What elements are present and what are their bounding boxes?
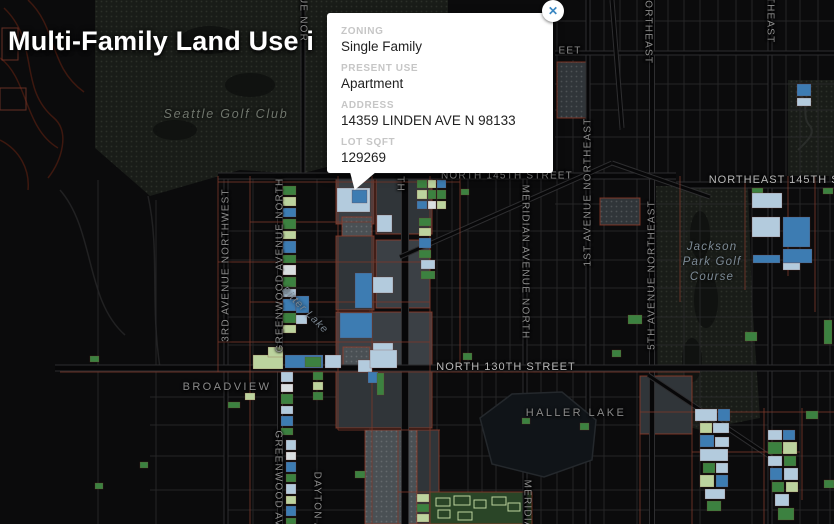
parcel[interactable]: [368, 372, 378, 383]
parcel[interactable]: [281, 394, 293, 404]
parcel[interactable]: [417, 180, 427, 188]
parcel[interactable]: [283, 289, 296, 297]
popup-field-value: Single Family: [341, 38, 539, 56]
parcel[interactable]: [325, 355, 341, 368]
parcel[interactable]: [268, 347, 283, 357]
parcel[interactable]: [340, 313, 372, 338]
parcel[interactable]: [783, 249, 812, 263]
parcel[interactable]: [419, 250, 431, 258]
parcel[interactable]: [421, 271, 435, 279]
popup-field: ZONINGSingle Family: [341, 26, 539, 56]
parcel[interactable]: [286, 496, 296, 504]
popup-field: ADDRESS14359 LINDEN AVE N 98133: [341, 100, 539, 130]
parcel[interactable]: [286, 440, 296, 450]
parcel[interactable]: [752, 188, 763, 193]
parcel[interactable]: [281, 428, 293, 435]
lake-layer: [480, 392, 596, 477]
popup-field-label: PRESENT USE: [341, 63, 539, 75]
parcel[interactable]: [772, 482, 784, 492]
parcel[interactable]: [797, 84, 811, 96]
parcel[interactable]: [753, 255, 780, 263]
parcel[interactable]: [705, 489, 725, 499]
parcel[interactable]: [296, 315, 307, 324]
parcel[interactable]: [281, 406, 293, 414]
parcel[interactable]: [745, 332, 757, 341]
parcel[interactable]: [428, 201, 436, 209]
parcel[interactable]: [437, 190, 446, 199]
parcel[interactable]: [305, 357, 321, 367]
parcel[interactable]: [700, 475, 714, 487]
parcel[interactable]: [417, 201, 427, 209]
popup-field-value: 129269: [341, 149, 539, 167]
parcel[interactable]: [370, 350, 397, 368]
parcel[interactable]: [283, 197, 296, 206]
parcel[interactable]: [417, 504, 429, 512]
parcel[interactable]: [296, 296, 309, 313]
popup-field: LOT SQFT129269: [341, 137, 539, 167]
parcel[interactable]: [283, 255, 296, 263]
parcel[interactable]: [797, 98, 811, 106]
parcel[interactable]: [784, 468, 798, 480]
parcel[interactable]: [419, 238, 431, 248]
parcel[interactable]: [700, 449, 728, 461]
parcel[interactable]: [628, 315, 642, 324]
map[interactable]: Seattle Golf ClubJacksonPark GolfCourseB…: [0, 0, 834, 524]
parcel[interactable]: [286, 452, 296, 460]
parcel[interactable]: [707, 501, 721, 511]
parcel[interactable]: [752, 193, 782, 208]
popup-close-button[interactable]: ✕: [542, 0, 564, 22]
parcel[interactable]: [245, 393, 255, 400]
parcel[interactable]: [428, 180, 436, 188]
parcel[interactable]: [419, 228, 431, 236]
parcel[interactable]: [228, 402, 240, 408]
parcel[interactable]: [283, 265, 296, 275]
parcel[interactable]: [286, 518, 296, 524]
parcel[interactable]: [580, 423, 589, 430]
parcel[interactable]: [778, 508, 794, 520]
parcel[interactable]: [428, 190, 436, 199]
parcel[interactable]: [283, 231, 296, 239]
parcel[interactable]: [283, 219, 296, 229]
popup-field-value: 14359 LINDEN AVE N 98133: [341, 112, 539, 130]
parcel[interactable]: [461, 189, 469, 195]
haller-lake: [480, 392, 596, 477]
parcel[interactable]: [417, 514, 429, 522]
parcel[interactable]: [703, 463, 715, 473]
parcel[interactable]: [281, 416, 293, 426]
parcel[interactable]: [90, 356, 99, 362]
parcel[interactable]: [437, 201, 446, 209]
parcel[interactable]: [806, 411, 818, 419]
parcel[interactable]: [417, 494, 429, 502]
parcel[interactable]: [824, 320, 832, 344]
page-title: Multi-Family Land Use i: [8, 26, 314, 57]
parcel[interactable]: [783, 430, 795, 440]
popup-field: PRESENT USEApartment: [341, 63, 539, 93]
popup-content: ZONINGSingle FamilyPRESENT USEApartmentA…: [327, 13, 553, 167]
popup-field-label: ADDRESS: [341, 100, 539, 112]
parcel[interactable]: [716, 463, 728, 473]
parcel[interactable]: [784, 456, 796, 466]
parcel[interactable]: [752, 217, 780, 237]
parcel[interactable]: [419, 218, 431, 226]
parcel[interactable]: [715, 437, 729, 447]
parcel[interactable]: [355, 273, 372, 308]
parcel[interactable]: [421, 260, 435, 269]
parcel[interactable]: [313, 372, 323, 380]
parcel[interactable]: [768, 456, 782, 466]
popup-field-value: Apartment: [341, 75, 539, 93]
parcel[interactable]: [823, 188, 833, 194]
parcel[interactable]: [355, 471, 365, 478]
popup-field-label: LOT SQFT: [341, 137, 539, 149]
parcel[interactable]: [313, 392, 323, 400]
parcel[interactable]: [417, 190, 427, 199]
parcel[interactable]: [786, 482, 798, 492]
parcel[interactable]: [695, 409, 717, 421]
parcel[interactable]: [716, 475, 728, 487]
parcel[interactable]: [775, 494, 789, 506]
parcel[interactable]: [286, 462, 296, 472]
parcel[interactable]: [283, 277, 296, 287]
parcel[interactable]: [783, 263, 800, 270]
parcel[interactable]: [463, 353, 472, 360]
parcel[interactable]: [95, 483, 103, 489]
parcel[interactable]: [281, 372, 293, 382]
parcel[interactable]: [373, 277, 393, 293]
parcel[interactable]: [713, 423, 729, 433]
close-icon: ✕: [548, 4, 558, 18]
parcel[interactable]: [283, 241, 296, 253]
parcel[interactable]: [281, 384, 293, 392]
parcel[interactable]: [286, 474, 296, 482]
parcel[interactable]: [768, 430, 782, 440]
parcel[interactable]: [377, 373, 384, 395]
popup-field-label: ZONING: [341, 26, 539, 38]
parcel[interactable]: [783, 442, 797, 454]
parcel[interactable]: [700, 435, 714, 447]
parcel[interactable]: [824, 480, 834, 488]
parcel[interactable]: [718, 409, 730, 421]
parcel[interactable]: [768, 442, 782, 454]
parcel[interactable]: [783, 217, 810, 247]
parcel[interactable]: [437, 180, 446, 188]
parcel[interactable]: [377, 215, 392, 232]
parcel[interactable]: [352, 190, 367, 203]
parcel[interactable]: [283, 208, 296, 217]
parcel[interactable]: [286, 484, 296, 494]
parcel[interactable]: [283, 325, 296, 333]
parcel[interactable]: [140, 462, 148, 468]
parcel[interactable]: [313, 382, 323, 390]
parcel[interactable]: [286, 506, 296, 516]
green-area: [430, 492, 532, 524]
map-popup: ZONINGSingle FamilyPRESENT USEApartmentA…: [327, 13, 553, 173]
parcel[interactable]: [283, 186, 296, 195]
parcel[interactable]: [522, 418, 530, 424]
parcel[interactable]: [283, 299, 296, 311]
parcel[interactable]: [770, 468, 782, 480]
parcel[interactable]: [612, 350, 621, 357]
parcel[interactable]: [283, 313, 296, 323]
parcel[interactable]: [700, 423, 712, 433]
